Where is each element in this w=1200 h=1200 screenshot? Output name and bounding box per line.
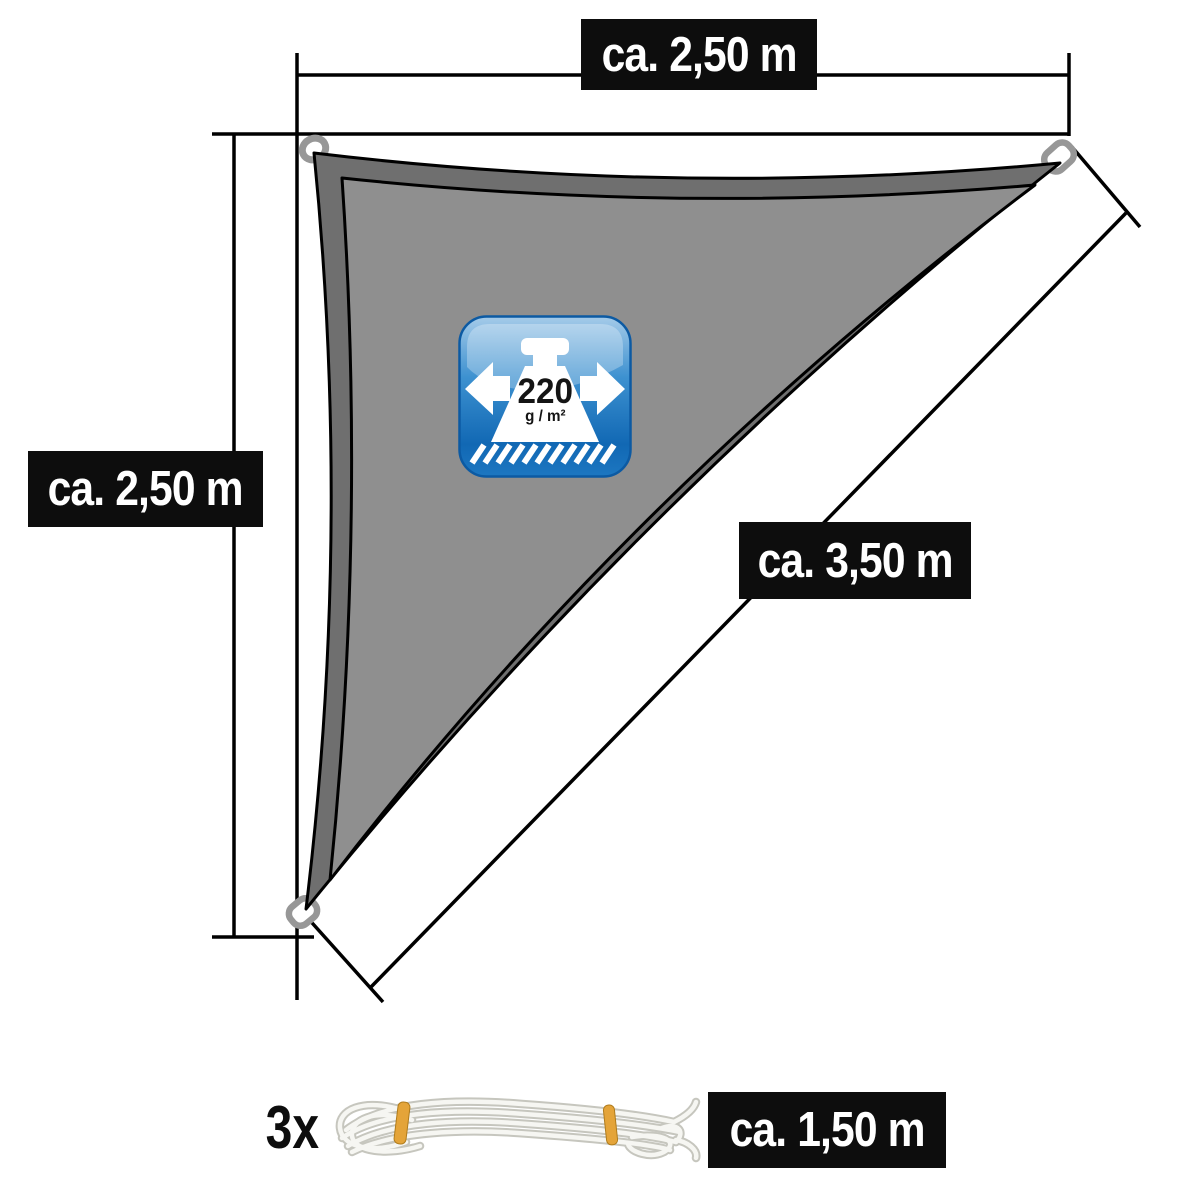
dimension-text-top-width: ca. 2,50 m bbox=[601, 27, 796, 83]
dimension-label-diagonal: ca. 3,50 m bbox=[739, 522, 971, 599]
weight-badge: 220 g / m² bbox=[458, 315, 632, 478]
badge-weight-value: 220 bbox=[458, 375, 632, 409]
rope-image bbox=[340, 1101, 696, 1158]
dimension-text-rope-length: ca. 1,50 m bbox=[729, 1102, 924, 1158]
dimension-label-left-height: ca. 2,50 m bbox=[28, 451, 263, 527]
extension-line-top-right-diagonal bbox=[1072, 147, 1140, 227]
extension-line-bottom-left-diagonal bbox=[305, 915, 383, 1002]
dimension-label-top-width: ca. 2,50 m bbox=[581, 19, 817, 90]
rope-quantity-text: 3x bbox=[265, 1093, 318, 1162]
dimension-label-rope-length: ca. 1,50 m bbox=[708, 1092, 946, 1168]
badge-weight-text: 220 bbox=[517, 375, 572, 409]
dimension-text-left-height: ca. 2,50 m bbox=[48, 461, 243, 517]
badge-weight-unit: g / m² bbox=[458, 409, 632, 425]
dimension-text-diagonal: ca. 3,50 m bbox=[757, 533, 952, 589]
diagram-artwork bbox=[0, 0, 1200, 1200]
badge-unit-text: g / m² bbox=[525, 409, 566, 425]
rope-quantity-label: 3x bbox=[250, 1096, 334, 1158]
shade-sail-dimension-diagram: 220 g / m² ca. 2,50 m ca. 2,50 m ca. 3,5… bbox=[0, 0, 1200, 1200]
